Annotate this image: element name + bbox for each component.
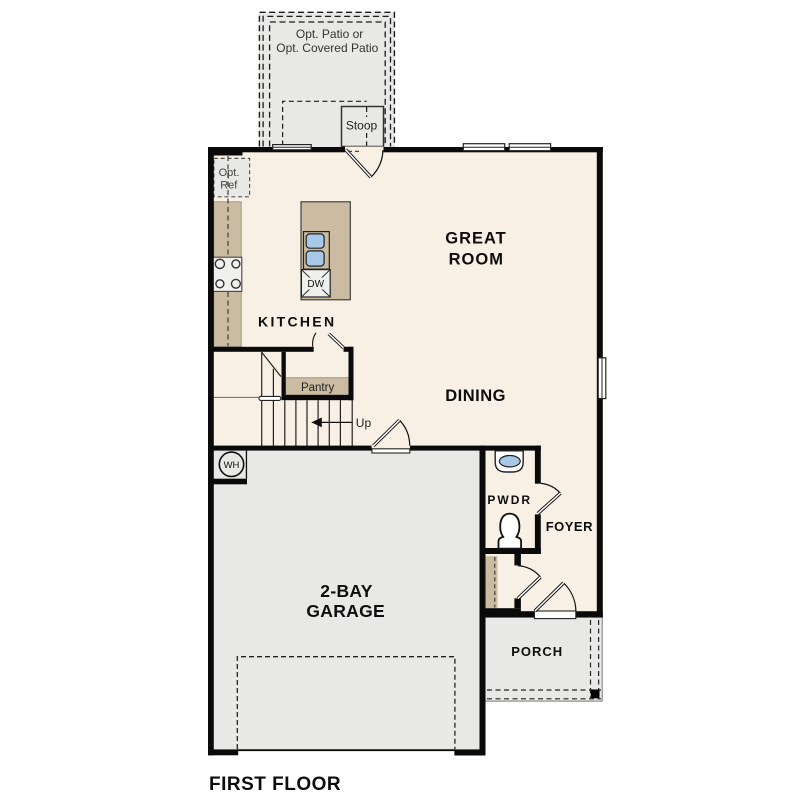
svg-text:KITCHEN: KITCHEN xyxy=(258,314,336,330)
svg-text:Opt. Covered Patio: Opt. Covered Patio xyxy=(276,41,378,55)
svg-text:DW: DW xyxy=(307,279,324,290)
svg-text:GREAT: GREAT xyxy=(445,230,507,248)
svg-text:Pantry: Pantry xyxy=(301,382,334,394)
svg-text:Opt.: Opt. xyxy=(219,167,240,179)
svg-text:FOYER: FOYER xyxy=(546,519,593,534)
svg-text:Up: Up xyxy=(356,416,372,430)
svg-text:GARAGE: GARAGE xyxy=(306,601,385,621)
svg-text:Ref: Ref xyxy=(220,180,238,192)
svg-text:PWDR: PWDR xyxy=(487,493,532,507)
svg-text:Opt. Patio or: Opt. Patio or xyxy=(296,27,363,41)
svg-text:WH: WH xyxy=(224,460,240,471)
svg-text:2-BAY: 2-BAY xyxy=(320,581,372,601)
svg-text:DINING: DINING xyxy=(445,387,506,405)
svg-text:FIRST FLOOR: FIRST FLOOR xyxy=(209,774,341,795)
svg-text:PORCH: PORCH xyxy=(511,644,563,659)
svg-text:ROOM: ROOM xyxy=(449,250,504,268)
svg-text:Stoop: Stoop xyxy=(346,119,378,133)
